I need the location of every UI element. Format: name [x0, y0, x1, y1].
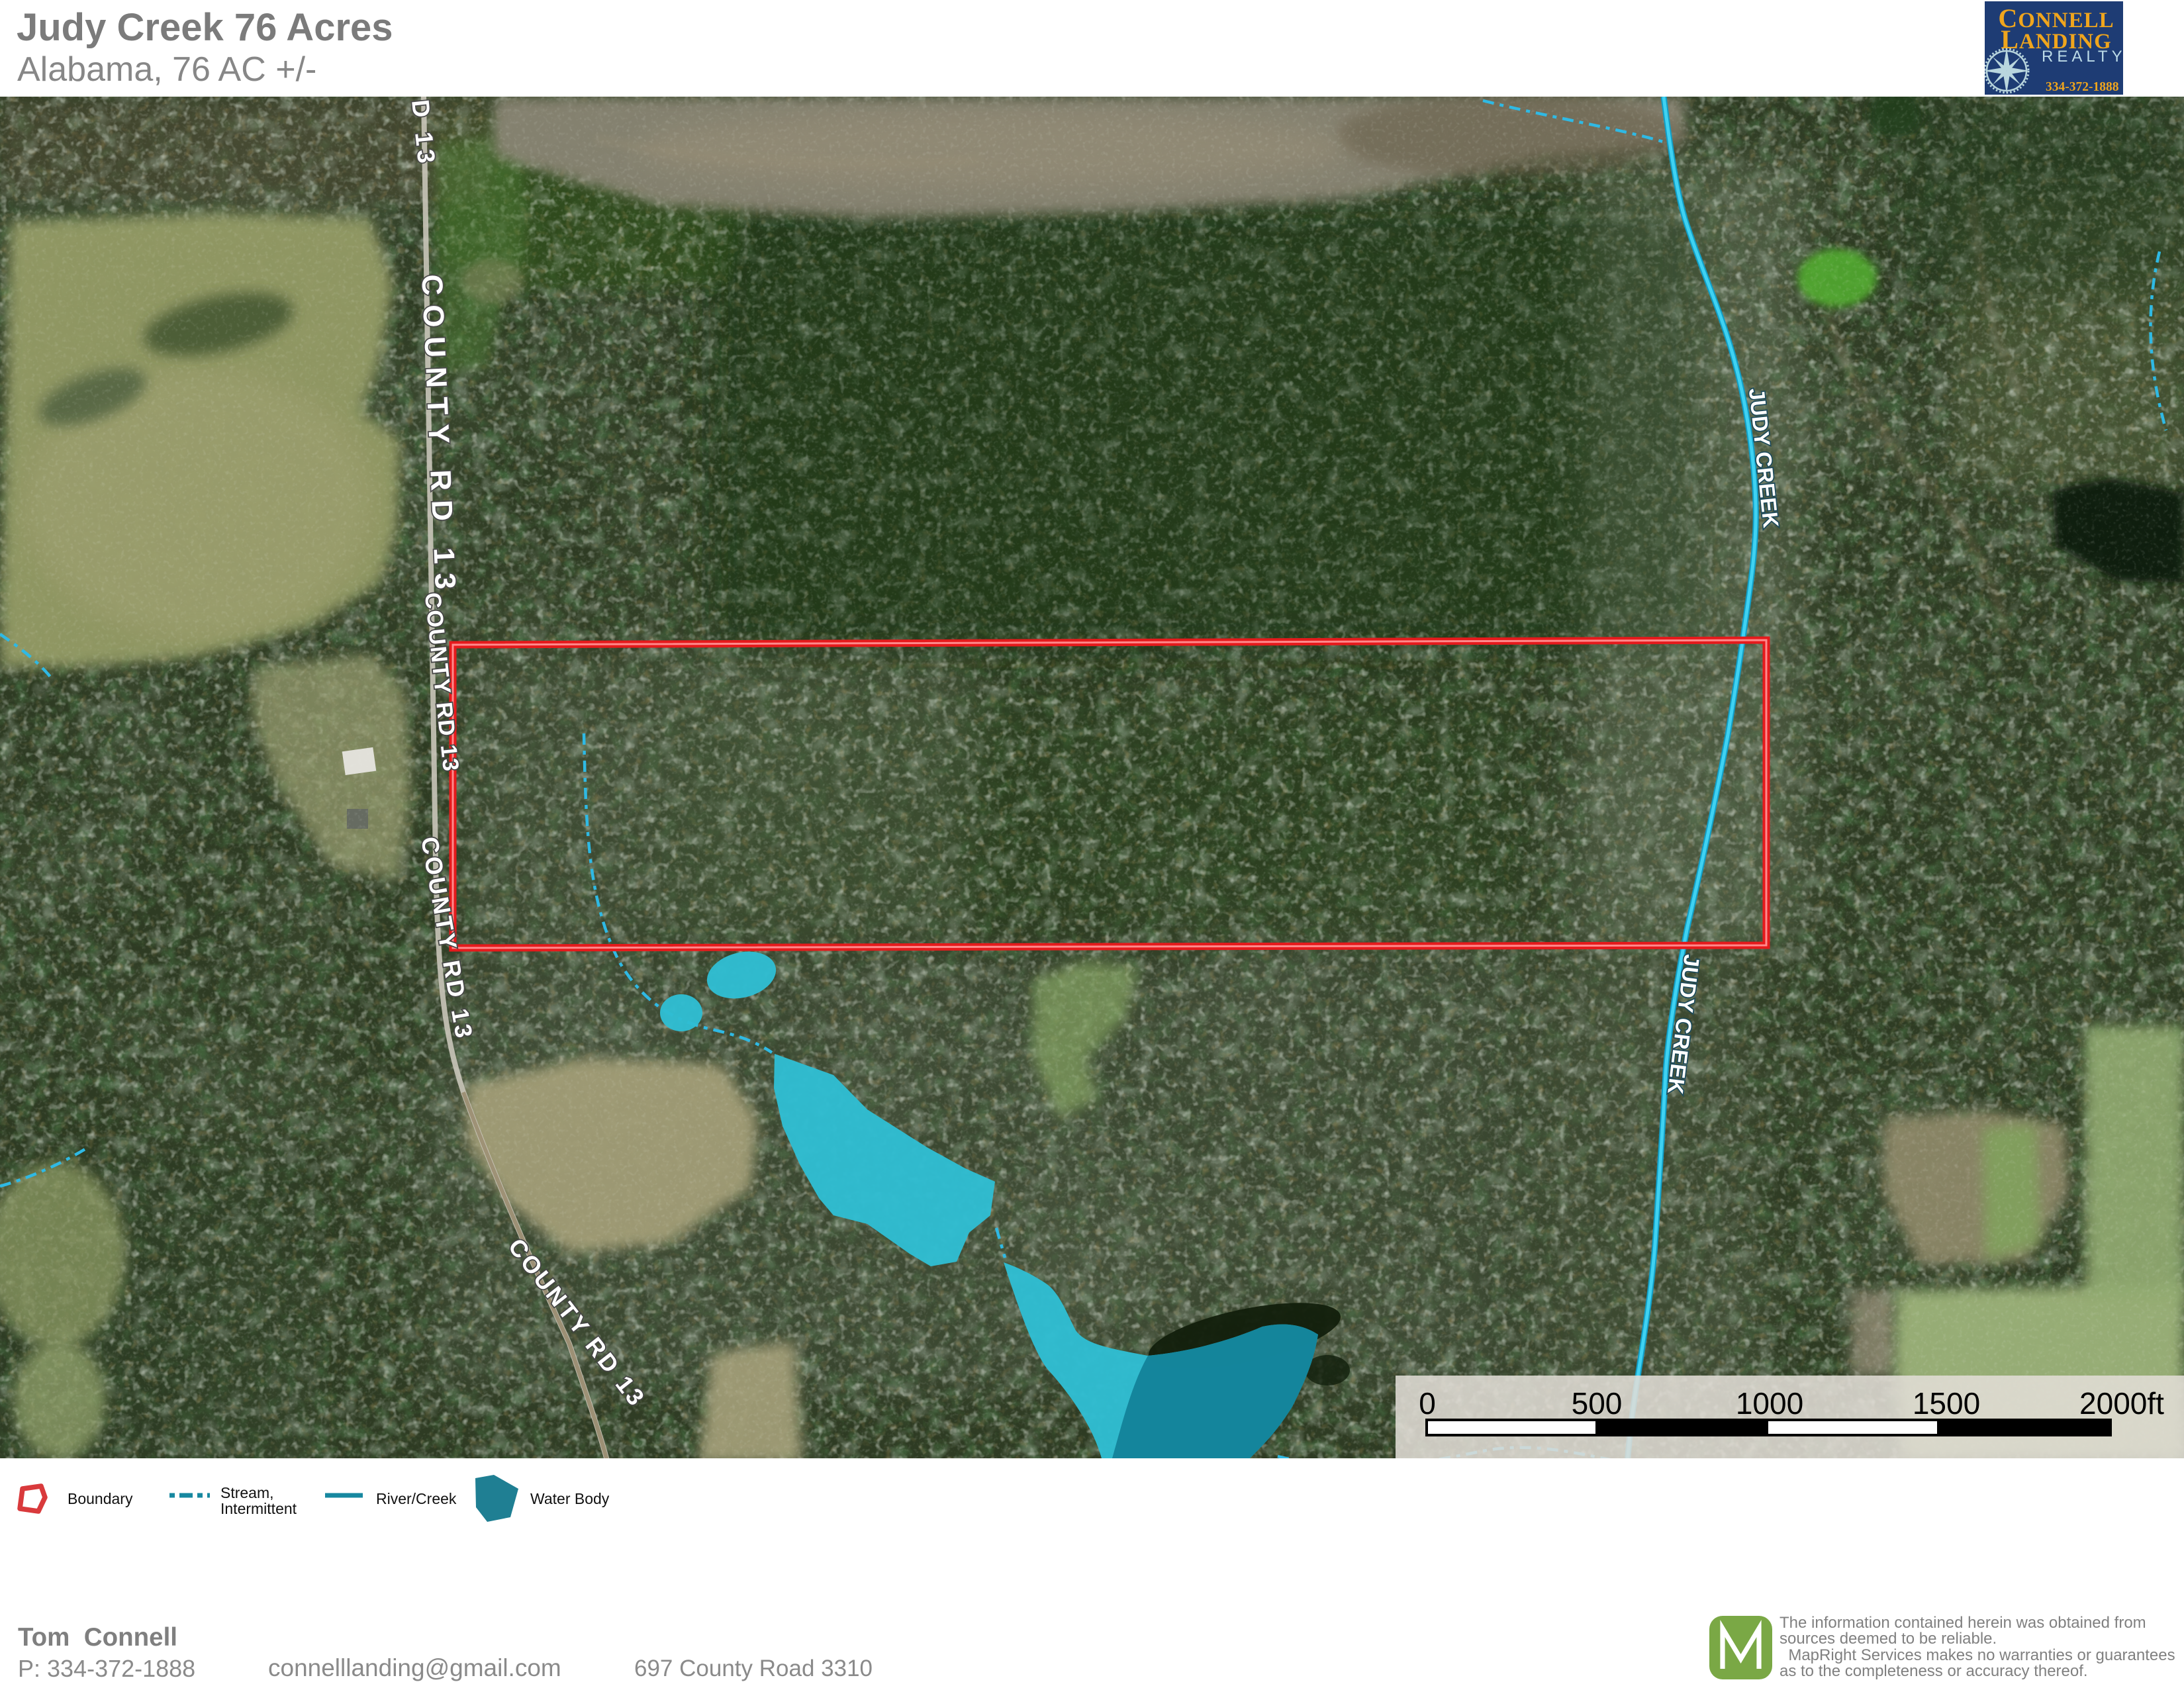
svg-text:Intermittent: Intermittent: [220, 1500, 297, 1517]
svg-text:Water Body: Water Body: [530, 1490, 610, 1507]
svg-text:1000: 1000: [1736, 1386, 1803, 1421]
svg-text:Stream,: Stream,: [220, 1484, 274, 1501]
svg-text:0: 0: [1419, 1386, 1436, 1421]
svg-text:1500: 1500: [1913, 1386, 1980, 1421]
svg-text:2000ft: 2000ft: [2079, 1386, 2164, 1421]
svg-text:Boundary: Boundary: [68, 1490, 133, 1507]
svg-text:500: 500: [1572, 1386, 1623, 1421]
svg-text:River/Creek: River/Creek: [376, 1490, 457, 1507]
